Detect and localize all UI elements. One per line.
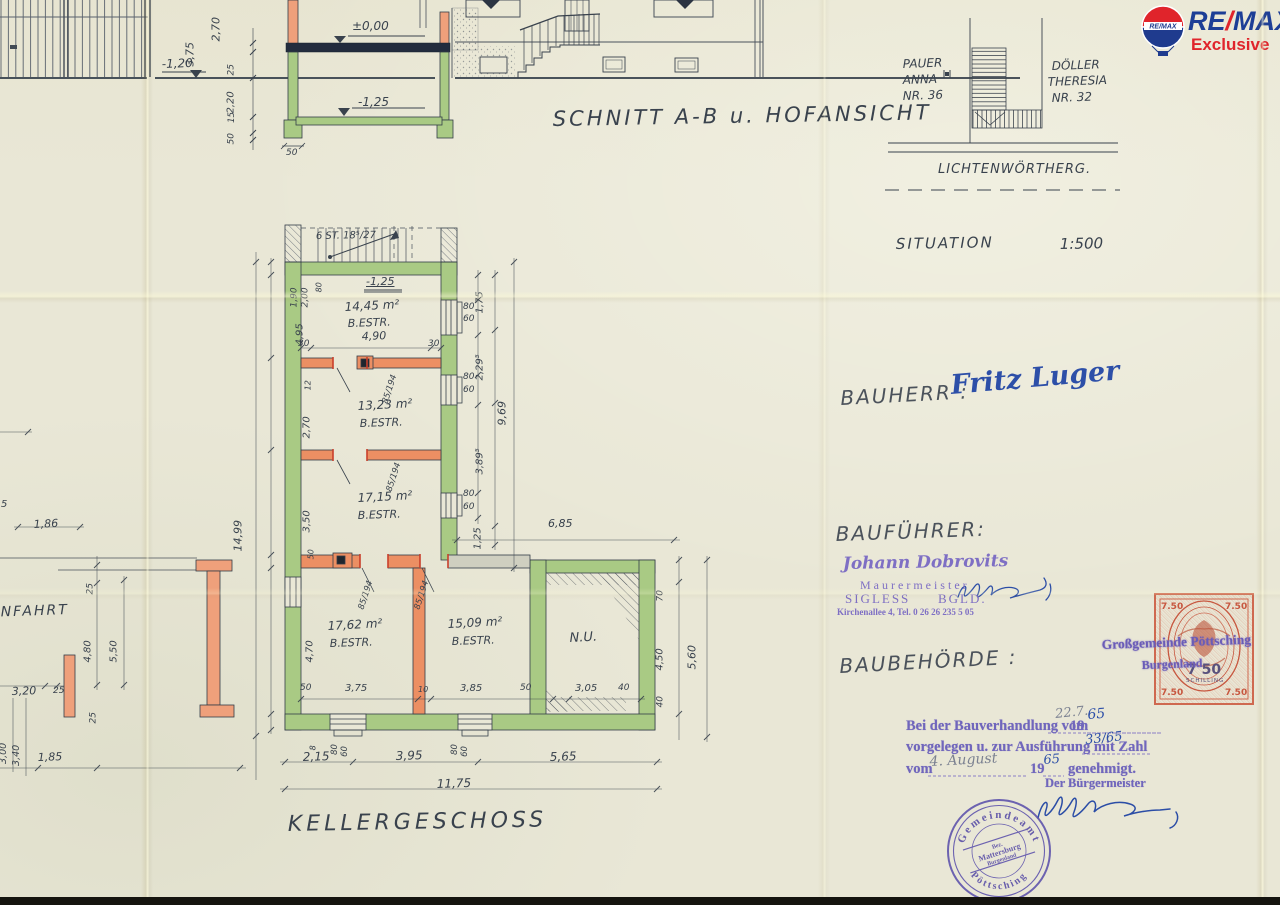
- stamp-currency: SCHILLING: [1186, 678, 1224, 684]
- remax-wordmark: RE/MAX: [1188, 6, 1280, 37]
- section-drawing: [155, 0, 478, 150]
- stamp-value-center: 7 50: [1187, 662, 1221, 678]
- floorplan-drawing: [285, 225, 655, 736]
- stamp-value: 7.50: [1161, 688, 1183, 698]
- round-stamp-top: Gemeindeamt: [955, 809, 1043, 845]
- municipal-round-stamp: Gemeindeamt Pöttsching Bez. Mattersburg …: [948, 800, 1050, 902]
- gate-drawing: [0, 0, 150, 78]
- stamp-value: 7.50: [1225, 688, 1247, 698]
- stamp-value: 7.50: [1161, 602, 1183, 612]
- round-stamp-bottom: Pöttsching: [968, 870, 1029, 892]
- dobrovits-signature: [958, 578, 1051, 600]
- stamp-value: 7.50: [1225, 602, 1247, 612]
- signatures: [958, 578, 1178, 828]
- remax-balloon-icon: RE/MAX: [1138, 4, 1188, 56]
- situation-drawing: [885, 18, 1120, 190]
- einfahrt-drawing: [64, 560, 234, 717]
- drawing-layer: 7.50 7.50 7.50 7.50 7 50 SCHILLING: [0, 0, 1280, 905]
- elevation-drawing: [452, 0, 1020, 78]
- svg-text:Pöttsching: Pöttsching: [968, 870, 1029, 892]
- scanned-blueprint-page: 7.50 7.50 7.50 7.50 7 50 SCHILLING: [0, 0, 1280, 905]
- revenue-stamp: 7.50 7.50 7.50 7.50 7 50 SCHILLING: [1155, 594, 1253, 704]
- buergermeister-signature: [1038, 797, 1170, 818]
- svg-text:Gemeindeamt: Gemeindeamt: [955, 809, 1043, 845]
- remax-logo: RE/MAX RE/MAX Exclusive: [1138, 4, 1280, 56]
- form-underlines: [928, 733, 1162, 776]
- scan-edge: [0, 897, 1280, 905]
- svg-text:RE/MAX: RE/MAX: [1149, 24, 1178, 31]
- remax-exclusive-label: Exclusive: [1191, 35, 1269, 55]
